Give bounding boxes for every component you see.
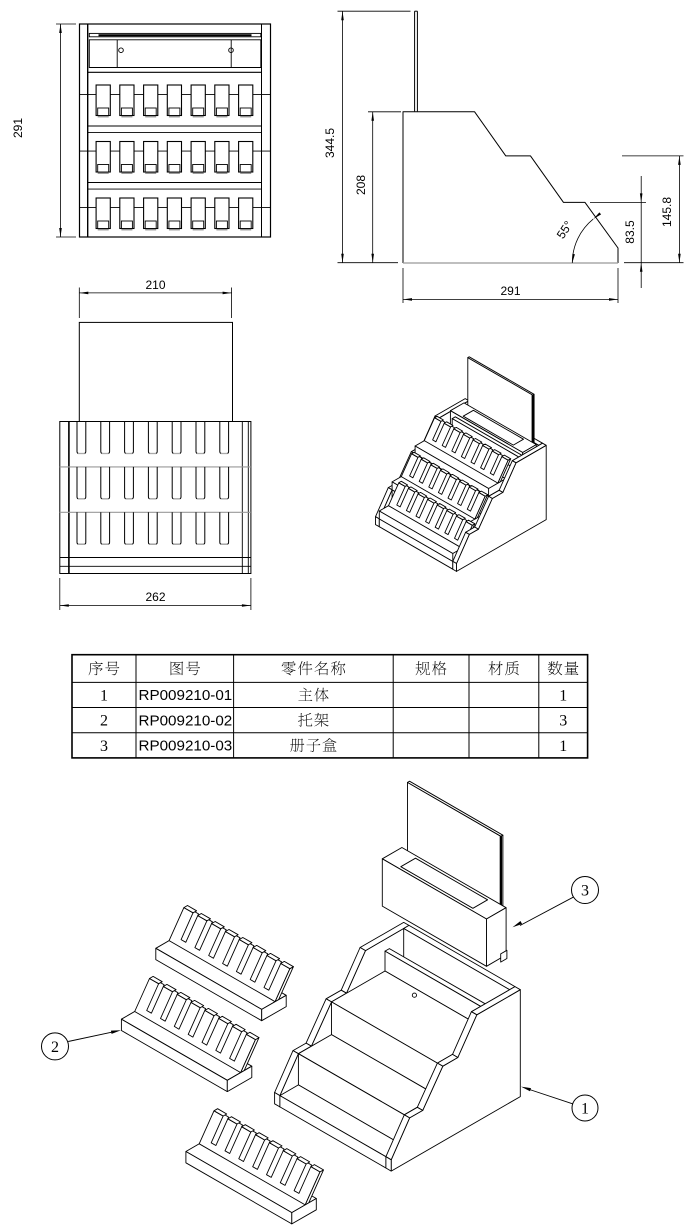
svg-text:2: 2 — [100, 713, 108, 730]
svg-text:RP009210-03: RP009210-03 — [139, 738, 233, 755]
svg-text:RP009210-02: RP009210-02 — [139, 712, 233, 729]
svg-text:291: 291 — [11, 118, 25, 138]
svg-text:RP009210-01: RP009210-01 — [139, 687, 233, 704]
svg-text:2: 2 — [51, 1039, 59, 1056]
svg-text:3: 3 — [559, 713, 567, 730]
svg-text:1: 1 — [559, 738, 567, 755]
svg-text:3: 3 — [581, 883, 589, 900]
svg-text:210: 210 — [145, 278, 165, 292]
svg-text:83.5: 83.5 — [623, 220, 637, 244]
svg-text:344.5: 344.5 — [323, 128, 337, 158]
svg-text:1: 1 — [559, 688, 567, 705]
svg-text:262: 262 — [145, 590, 165, 604]
svg-text:1: 1 — [581, 1101, 589, 1118]
svg-text:3: 3 — [100, 738, 108, 755]
svg-text:1: 1 — [100, 688, 108, 705]
svg-text:208: 208 — [354, 175, 368, 195]
svg-text:291: 291 — [500, 284, 520, 298]
svg-text:145.8: 145.8 — [660, 197, 674, 227]
